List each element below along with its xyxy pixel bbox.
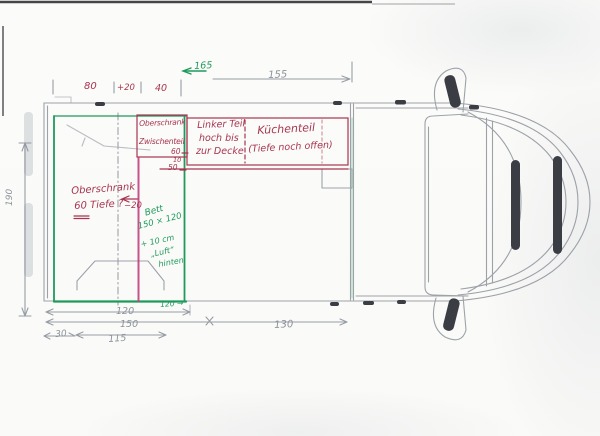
offset-value: −20 <box>124 202 142 211</box>
door-seam-mark <box>330 302 339 306</box>
dim-150: 150 <box>120 320 138 330</box>
dim-plus20: +20 <box>117 84 135 93</box>
depth-60: 60 <box>171 148 181 156</box>
step-notch <box>322 169 352 188</box>
scanned-sketch-page: 80 +20 40 165 155 190 Oberschrank Zwisch… <box>0 0 600 436</box>
door-seam-mark <box>333 101 342 105</box>
door-seam-mark <box>397 300 406 304</box>
kitchen-label-1: Küchenteil <box>257 122 315 136</box>
left-part-label-2: hoch bis <box>199 134 239 144</box>
left-part-label-3: zur Decke <box>196 147 244 157</box>
green-120-label: 120 → <box>160 299 183 308</box>
cab-interior <box>425 114 468 296</box>
dim-130: 130 <box>274 320 294 331</box>
door-seam-mark <box>469 105 479 110</box>
dim-80: 80 <box>84 82 97 92</box>
dimension-lines <box>19 62 352 339</box>
left-part-label-1: Linker Teil <box>197 119 245 130</box>
dim-120: 120 <box>116 307 134 317</box>
headlight-bar <box>553 156 562 254</box>
dim-30: 30 <box>55 330 67 340</box>
door-seam-mark <box>395 100 406 105</box>
door-seam-mark <box>363 301 374 305</box>
wheel-arch-marks <box>77 261 164 290</box>
dim-155: 155 <box>268 70 287 81</box>
dim-165-green: 165 <box>194 61 213 71</box>
headlight-bar <box>511 160 520 250</box>
depth-50: 50 <box>168 164 178 172</box>
cabinet-top-label-1: Oberschrank <box>139 118 186 127</box>
door-seam-mark <box>95 102 105 106</box>
cabinet-top-label-2: Zwischenteil <box>139 138 184 146</box>
dim-115: 115 <box>108 334 127 345</box>
van-floorplan-drawing <box>0 0 600 436</box>
dim-190-vertical: 190 <box>6 189 15 206</box>
dim-40: 40 <box>155 84 167 94</box>
side-mirror-bottom <box>442 297 461 332</box>
